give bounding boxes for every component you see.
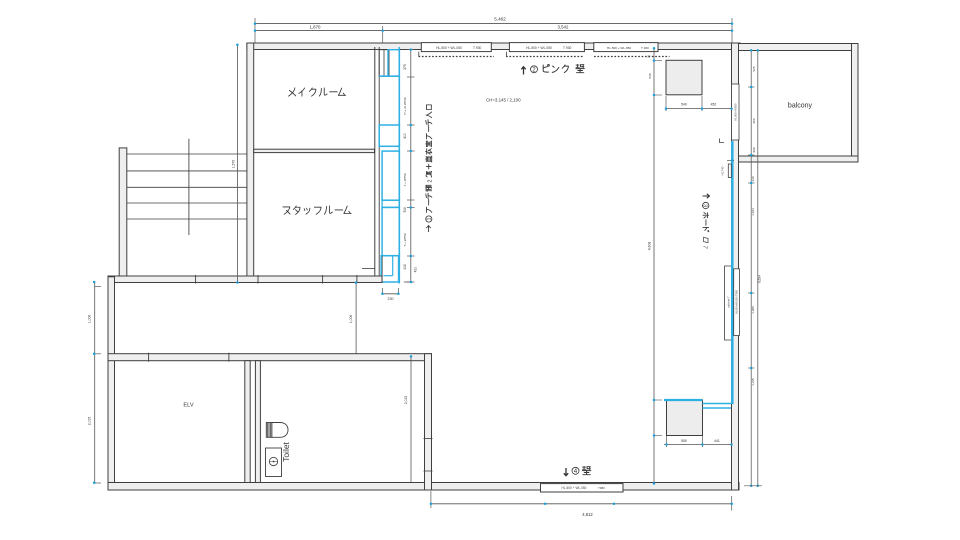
svg-text:950: 950 [752, 118, 756, 123]
svg-text:2,015: 2,015 [404, 396, 408, 405]
svg-text:990: 990 [752, 147, 756, 152]
svg-text:452: 452 [711, 103, 717, 107]
svg-text:1,944: 1,944 [751, 208, 755, 216]
svg-text:7-+ W750: 7-+ W750 [403, 173, 407, 186]
svg-text:410: 410 [414, 267, 418, 273]
svg-text:7-+ W750: 7-+ W750 [403, 233, 407, 246]
svg-text:HL,500 + WL,050: HL,500 + WL,050 [436, 46, 462, 50]
svg-text:2: 2 [532, 66, 536, 73]
svg-text:HL,500 + WL,050: HL,500 + WL,050 [526, 46, 552, 50]
svg-text:I7-+ AI W730: I7-+ AI W730 [403, 97, 407, 115]
svg-text:T 930: T 930 [641, 46, 649, 50]
svg-text:T 930: T 930 [473, 46, 482, 50]
svg-text:4,608: 4,608 [648, 242, 652, 251]
svg-text:550: 550 [681, 439, 687, 443]
svg-text:HL600+W950: HL600+W950 [734, 103, 738, 121]
svg-text:2: 2 [428, 180, 434, 183]
svg-text:HL740: HL740 [721, 166, 725, 175]
svg-text:410: 410 [403, 264, 407, 270]
svg-text:230: 230 [751, 176, 755, 181]
svg-text:CH=3,145 / 2,100: CH=3,145 / 2,100 [486, 97, 521, 102]
svg-text:1,315: 1,315 [751, 378, 755, 386]
svg-text:HL500+WL050 T980: HL500+WL050 T980 [735, 289, 739, 314]
svg-text:1,006: 1,006 [88, 315, 92, 324]
svg-text:525: 525 [752, 66, 756, 71]
svg-text:230: 230 [388, 297, 394, 301]
svg-text:540: 540 [648, 73, 652, 78]
svg-text:HL,500 + WL,050: HL,500 + WL,050 [607, 46, 631, 50]
svg-text:balcony: balcony [788, 103, 813, 110]
svg-text:1,570: 1,570 [232, 160, 236, 168]
svg-text:1,380: 1,380 [751, 306, 755, 314]
svg-text:HL,500 + WL,050: HL,500 + WL,050 [562, 486, 587, 490]
svg-text:T 930: T 930 [563, 46, 572, 50]
svg-text:3,542: 3,542 [558, 25, 570, 30]
svg-text:T980: T980 [598, 486, 605, 490]
svg-text:4: 4 [574, 468, 578, 475]
svg-text:410: 410 [403, 133, 407, 139]
svg-text:375: 375 [403, 64, 407, 70]
svg-text:2,015: 2,015 [88, 417, 92, 426]
svg-text:441: 441 [714, 439, 720, 443]
svg-text:6,634: 6,634 [757, 275, 761, 283]
svg-text:540: 540 [681, 103, 687, 107]
svg-text:cabinet T: cabinet T [727, 296, 731, 308]
svg-text:310: 310 [403, 207, 407, 213]
svg-text:5,462: 5,462 [494, 17, 506, 22]
svg-text:ELV: ELV [183, 403, 193, 409]
svg-text:Toilet: Toilet [281, 441, 291, 461]
svg-text:1,006: 1,006 [349, 315, 353, 324]
svg-text:3: 3 [702, 204, 708, 207]
svg-text:1: 1 [427, 217, 433, 220]
svg-text:1,870: 1,870 [310, 25, 322, 30]
svg-text:4,812: 4,812 [582, 512, 593, 517]
